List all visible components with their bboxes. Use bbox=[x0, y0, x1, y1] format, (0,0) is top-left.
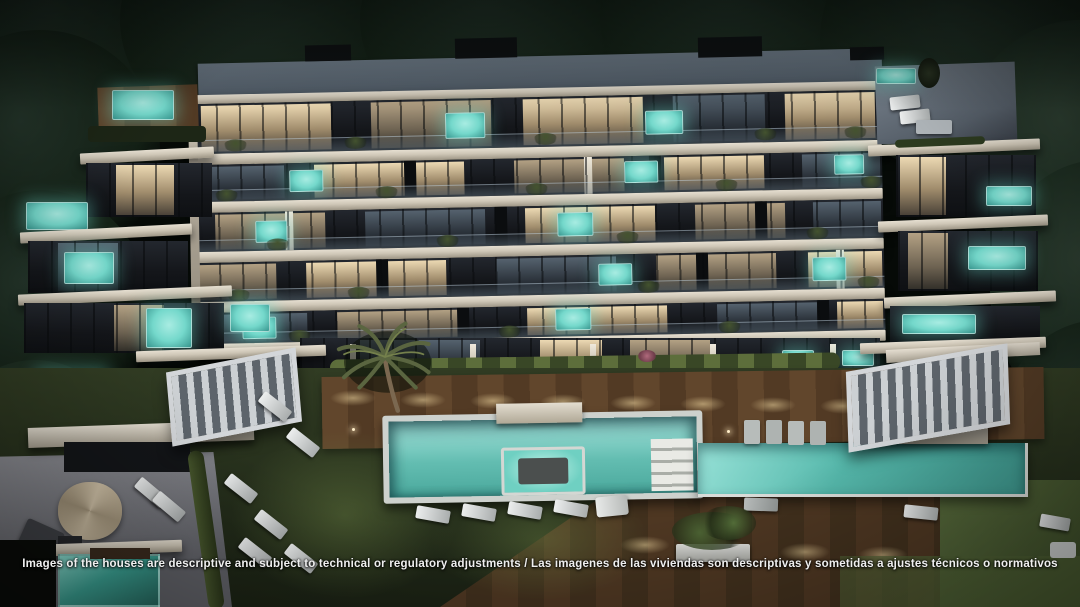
flowering-shrub bbox=[638, 350, 656, 362]
canopy-shadow-interior bbox=[64, 442, 190, 472]
roof-box bbox=[850, 47, 884, 61]
roof-box bbox=[455, 37, 517, 58]
terrace-pool bbox=[64, 252, 114, 284]
island-daybed bbox=[518, 458, 568, 485]
terrace-pool bbox=[26, 202, 88, 230]
balcony-plunge-pool bbox=[812, 257, 846, 282]
rooftop-plant bbox=[918, 58, 940, 88]
disclaimer-caption: Images of the houses are descriptive and… bbox=[0, 558, 1080, 570]
terrace-pool bbox=[986, 186, 1032, 206]
sun-lounger bbox=[744, 497, 778, 511]
outdoor-sofa bbox=[916, 120, 952, 134]
balcony-plunge-pool bbox=[624, 160, 658, 183]
window-mullions bbox=[24, 303, 224, 353]
parasol bbox=[58, 482, 122, 540]
terrace-pool bbox=[146, 308, 192, 348]
balcony-plunge-pool bbox=[598, 263, 632, 286]
architectural-night-render: Images of the houses are descriptive and… bbox=[0, 0, 1080, 607]
building-facade bbox=[192, 68, 886, 355]
in-pool-lounger bbox=[744, 420, 760, 444]
main-pool-lane bbox=[698, 443, 1028, 497]
balcony-plunge-pool bbox=[555, 308, 591, 331]
terrace-unit bbox=[24, 303, 224, 353]
terrace-pool bbox=[230, 304, 270, 332]
in-pool-lounger bbox=[766, 420, 782, 444]
in-pool-lounger bbox=[810, 421, 826, 445]
pool-steps bbox=[651, 438, 694, 491]
terrace-unit bbox=[86, 163, 212, 217]
penthouse-plunge-pool bbox=[645, 110, 683, 135]
balcony-plunge-pool bbox=[289, 170, 323, 193]
deck-cushions bbox=[1050, 542, 1076, 558]
in-pool-lounger bbox=[788, 421, 804, 445]
planter-plants bbox=[700, 506, 756, 540]
palm-tree bbox=[318, 298, 452, 426]
deck-light-glow bbox=[610, 395, 656, 411]
rooftop-pool bbox=[876, 68, 916, 84]
terrace-pool bbox=[112, 90, 174, 120]
main-pool-basin bbox=[382, 410, 703, 504]
dark-corner bbox=[0, 540, 56, 607]
balcony-plunge-pool bbox=[834, 154, 864, 175]
terrace-pool bbox=[968, 246, 1026, 270]
penthouse-plunge-pool bbox=[445, 112, 486, 139]
deck-cushions bbox=[595, 494, 629, 517]
roof-box bbox=[305, 44, 351, 61]
bollard-light bbox=[727, 430, 730, 433]
deck-light-glow bbox=[750, 397, 796, 413]
terrace-hedge bbox=[88, 126, 206, 142]
pool-waterfall-bridge bbox=[496, 402, 582, 423]
pool-island-lounge bbox=[501, 446, 586, 495]
roof-box bbox=[698, 36, 762, 57]
terrace-pool bbox=[902, 314, 976, 334]
balcony-plunge-pool bbox=[557, 212, 593, 237]
window-mullions bbox=[86, 163, 212, 217]
